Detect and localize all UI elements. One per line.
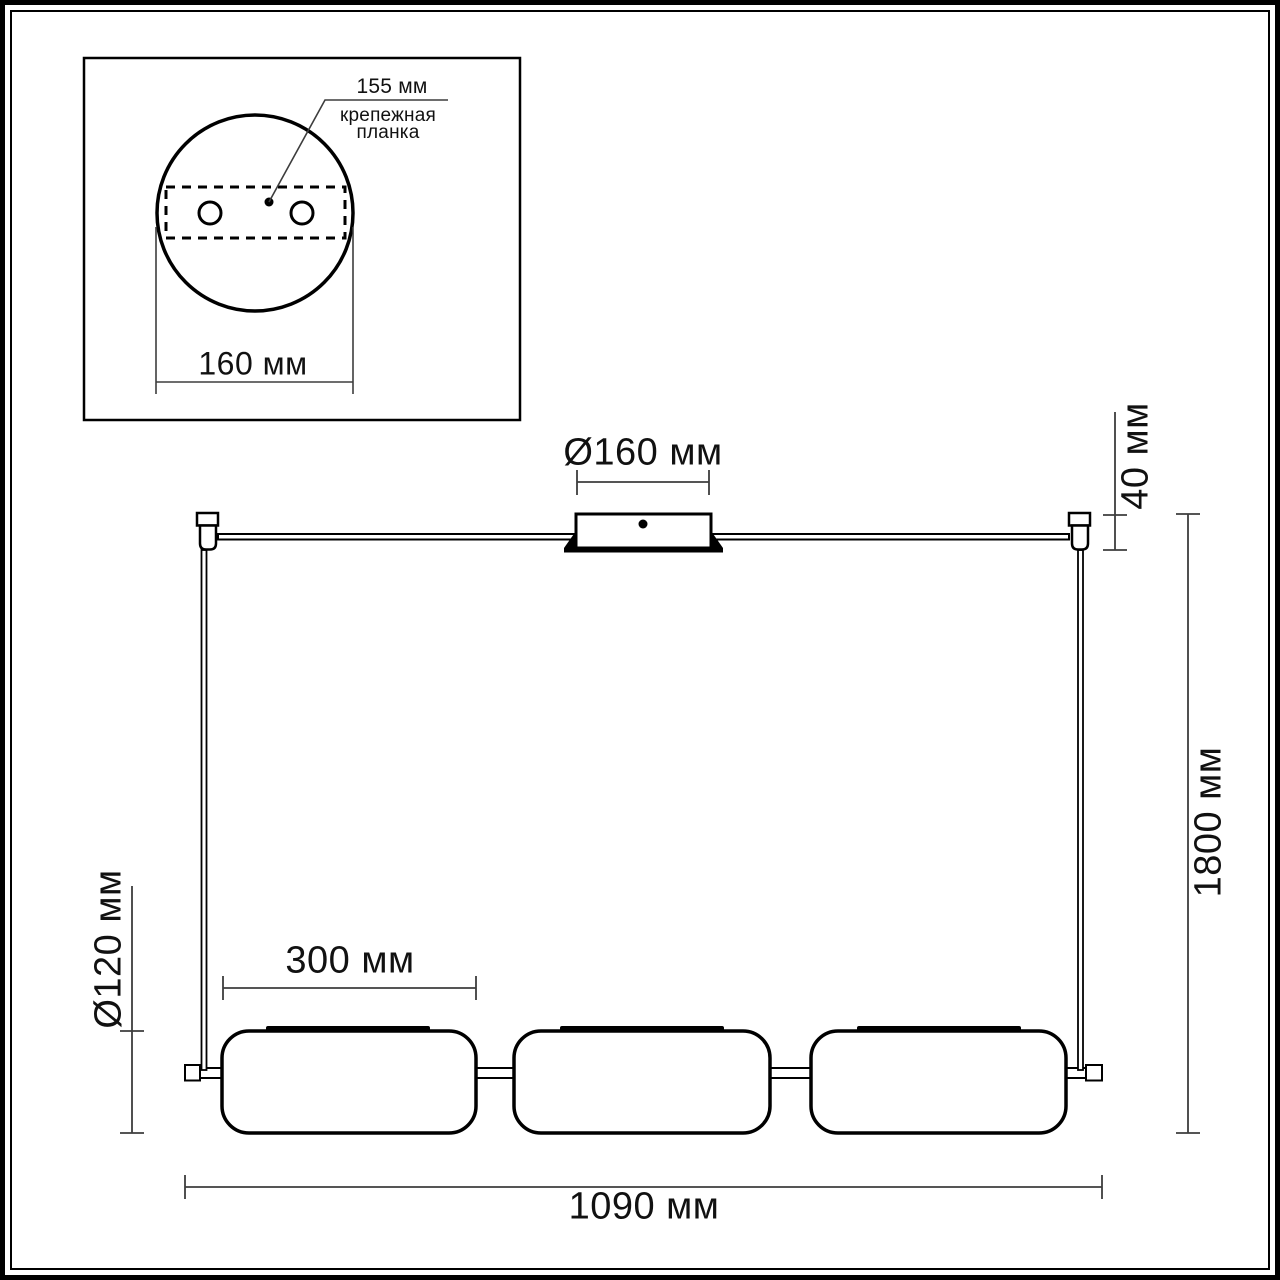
shade-width-label: 300 мм — [285, 940, 414, 983]
lamp-shade-2 — [514, 1031, 770, 1133]
inset-plate-name-line2: планка — [340, 124, 436, 141]
total-width-label: 1090 мм — [569, 1186, 720, 1229]
max-height-label: 1800 мм — [1188, 747, 1231, 898]
canopy-body — [576, 514, 711, 548]
line-art-layer — [0, 0, 1280, 1280]
mounting-hole-left — [199, 202, 221, 224]
suspension-wire-right — [1078, 550, 1083, 1070]
shade-diameter-label: Ø120 мм — [88, 869, 131, 1028]
suspension-rod-left — [218, 534, 576, 540]
suspension-wire-left — [202, 550, 207, 1070]
inset-base-diameter-label: 160 мм — [198, 346, 307, 383]
wire-connector-right — [1069, 513, 1090, 550]
lamp-shade-3 — [811, 1031, 1066, 1133]
light-bar-endcap-left — [185, 1065, 200, 1081]
inset-plate-name-label: крепежная планка — [340, 107, 436, 141]
canopy-diameter-label: Ø160 мм — [563, 432, 722, 475]
inset-plate-length-label: 155 мм — [357, 75, 428, 99]
light-bar-endcap-right — [1086, 1065, 1102, 1081]
canopy-height-label: 40 мм — [1115, 402, 1158, 510]
suspension-rod-right — [711, 534, 1069, 540]
mounting-hole-right — [291, 202, 313, 224]
shade-lid-3 — [857, 1026, 1021, 1032]
canopy-base-plate — [564, 548, 723, 553]
wire-connector-left — [197, 513, 218, 550]
lamp-shade-1 — [222, 1031, 476, 1133]
shade-lid-2 — [560, 1026, 724, 1032]
shade-lid-1 — [266, 1026, 430, 1032]
canopy-center-dot — [639, 520, 648, 529]
technical-drawing-canvas: 155 мм крепежная планка 160 мм Ø160 мм 4… — [0, 0, 1280, 1280]
